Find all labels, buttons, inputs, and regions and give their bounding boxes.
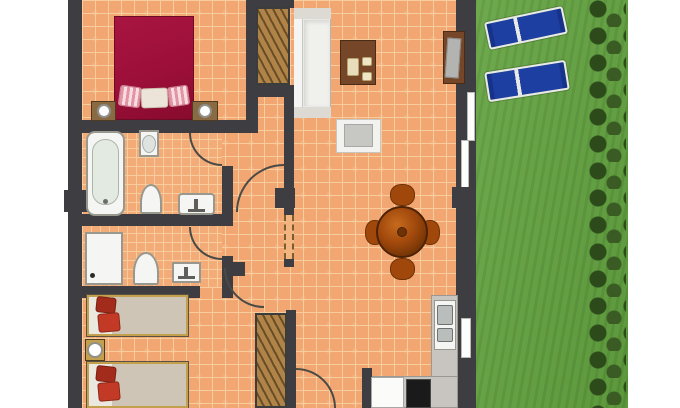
sliding-door-panel-inner [461, 140, 469, 190]
wall-pillar-right [452, 187, 476, 208]
pillow-upper-bright [97, 312, 121, 333]
kitchen-window [461, 318, 471, 358]
floor-plan [0, 0, 680, 408]
sofa-seat [304, 20, 329, 106]
washbasin2-faucet-bar [178, 276, 195, 279]
dashed-opening [284, 215, 294, 259]
pillow-upper-dark [95, 296, 117, 314]
sliding-door-panel-outer [467, 92, 475, 141]
pillow-striped-left [118, 85, 143, 109]
sofa-backrest [294, 8, 303, 118]
toilet-bathroom2 [133, 252, 159, 285]
sofa-armrest-bottom [294, 107, 331, 118]
coffee-table-cup-2 [362, 72, 372, 81]
white-side-table-top [344, 124, 373, 147]
sink-basin-small [437, 328, 453, 342]
wall-bathroom1-right [222, 166, 233, 214]
bidet-faucet-bar [188, 209, 205, 212]
wardrobe-bedroom2 [255, 313, 287, 408]
wall-bedroom2-right [286, 310, 296, 408]
sink-basin-large [437, 305, 453, 325]
dining-table-knot [397, 227, 407, 237]
bathtub-basin [92, 139, 119, 205]
shower-drain [90, 273, 95, 278]
toilet-bathroom1 [140, 184, 162, 214]
sofa-armrest-top [294, 8, 331, 19]
tv [445, 38, 462, 79]
lamp-bedroom2 [87, 342, 103, 358]
lamp-left [97, 104, 111, 118]
dishwasher [371, 377, 404, 408]
dining-chair-top [390, 184, 415, 206]
dining-chair-bottom [390, 258, 415, 280]
oven [406, 379, 431, 408]
wall-pillar-left [64, 190, 88, 212]
garden-hedge [588, 0, 626, 408]
bathtub-faucet [103, 199, 108, 204]
pillow-striped-right [167, 85, 191, 108]
coffee-table-tray [347, 58, 359, 76]
wardrobe-living [256, 7, 290, 85]
pillow-lower-bright [97, 381, 121, 402]
pillow-lower-dark [95, 365, 117, 383]
lamp-right [198, 104, 212, 118]
pillow-white-center [141, 88, 169, 109]
coffee-table-cup-1 [362, 57, 372, 66]
wall-dash-end [284, 259, 294, 267]
